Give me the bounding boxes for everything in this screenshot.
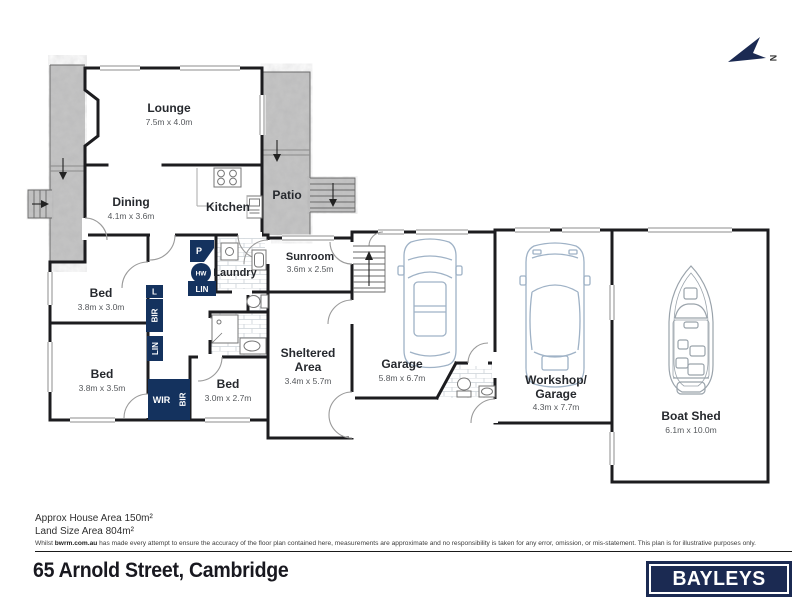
laundry-label: Laundry xyxy=(213,267,257,279)
workshop-label-1: Workshop/ xyxy=(525,373,587,387)
lounge-dims: 7.5m x 4.0m xyxy=(146,117,193,127)
washing-machine-icon xyxy=(221,243,238,260)
lounge-label: Lounge xyxy=(147,101,191,115)
sunroom-label: Sunroom xyxy=(286,251,334,263)
bayleys-logo: BAYLEYS xyxy=(646,561,792,597)
sedan-icon xyxy=(520,243,590,387)
floor-plan-page: P HW LIN L BIR LIN WIR BIR xyxy=(0,0,800,600)
bir2-label: BIR xyxy=(179,392,188,406)
patio-area xyxy=(263,72,310,235)
bayleys-logo-text: BAYLEYS xyxy=(672,568,765,591)
sheltered-dims: 3.4m x 5.7m xyxy=(285,376,332,386)
stove-icon xyxy=(214,168,241,187)
bed2-label: Bed xyxy=(91,367,114,381)
sheltered-label-1: Sheltered xyxy=(281,346,336,360)
bed2-dims: 3.8m x 3.5m xyxy=(79,383,126,393)
shower-icon xyxy=(212,315,238,343)
north-arrow-icon: N xyxy=(728,37,778,62)
property-address: 65 Arnold Street, Cambridge xyxy=(33,559,288,583)
suv-icon xyxy=(398,239,462,368)
disclaimer-prefix: Whilst xyxy=(35,540,55,547)
floor-plan: P HW LIN L BIR LIN WIR BIR xyxy=(0,0,800,555)
bed1-dims: 3.8m x 3.0m xyxy=(78,302,125,312)
workshop-dims: 4.3m x 7.7m xyxy=(533,402,580,412)
linen-small-label: L xyxy=(152,288,157,297)
sunroom-dims: 3.6m x 2.5m xyxy=(287,264,334,274)
garage-label: Garage xyxy=(381,357,423,371)
dining-label: Dining xyxy=(112,195,149,209)
garage-basin-icon xyxy=(479,386,495,397)
bed3-label: Bed xyxy=(217,377,240,391)
dining-dims: 4.1m x 3.6m xyxy=(108,211,155,221)
bayleys-logo-border: BAYLEYS xyxy=(649,564,789,594)
hot-water-label: HW xyxy=(196,271,208,278)
linen2-label: LIN xyxy=(151,342,160,355)
land-area-text: Land Size Area 804m² xyxy=(35,526,134,537)
house-area-text: Approx House Area 150m² xyxy=(35,513,153,524)
divider-line xyxy=(35,551,792,552)
bed3-dims: 3.0m x 2.7m xyxy=(205,393,252,403)
garage-toilet-icon xyxy=(457,378,471,397)
boatshed-label: Boat Shed xyxy=(661,409,720,423)
pantry-label: P xyxy=(196,246,202,256)
wir-label: WIR xyxy=(153,395,171,405)
linen1-label: LIN xyxy=(196,285,209,294)
patio-label: Patio xyxy=(272,188,301,202)
bir1-label: BIR xyxy=(151,308,160,322)
boatshed-dims: 6.1m x 10.0m xyxy=(665,425,717,435)
bed1-label: Bed xyxy=(90,286,113,300)
north-label: N xyxy=(768,55,778,62)
disclaimer-brand: bwrm.com.au xyxy=(55,540,98,547)
vanity-icon xyxy=(240,338,266,354)
garage-dims: 5.8m x 6.7m xyxy=(379,373,426,383)
workshop-label-2: Garage xyxy=(535,387,577,401)
disclaimer-rest: has made every attempt to ensure the acc… xyxy=(97,540,756,547)
sheltered-label-2: Area xyxy=(295,360,322,374)
kitchen-label: Kitchen xyxy=(206,200,250,214)
boat-icon xyxy=(669,266,713,394)
toilet-icon xyxy=(247,295,268,308)
verandah-left xyxy=(50,65,85,262)
disclaimer-text: Whilst bwrm.com.au has made every attemp… xyxy=(35,540,780,547)
